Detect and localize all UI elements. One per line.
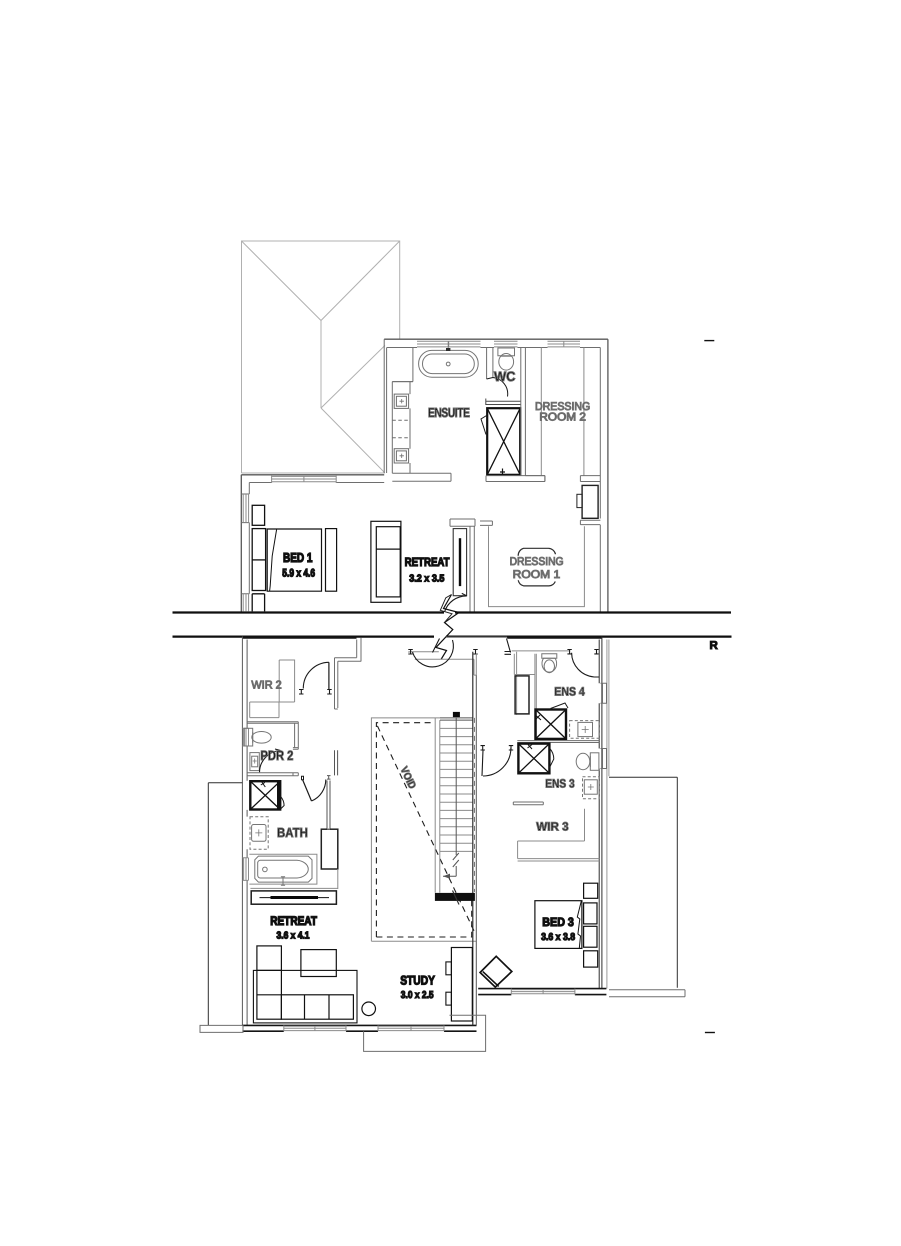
svg-text:3.2 x 3.5: 3.2 x 3.5	[409, 574, 445, 585]
svg-text:ENS 4: ENS 4	[554, 684, 585, 698]
svg-text:RETREAT: RETREAT	[270, 914, 317, 928]
svg-text:3.0 x 2.5: 3.0 x 2.5	[401, 990, 434, 1001]
svg-text:ENS 3: ENS 3	[545, 776, 575, 790]
svg-text:STUDY: STUDY	[400, 974, 435, 988]
svg-text:BATH: BATH	[277, 825, 308, 840]
svg-text:3.6 x 3.8: 3.6 x 3.8	[541, 932, 575, 943]
svg-text:DRESSING: DRESSING	[510, 556, 564, 568]
svg-text:WIR 2: WIR 2	[251, 680, 281, 692]
svg-text:R: R	[710, 640, 719, 652]
svg-text:ROOM 2: ROOM 2	[539, 411, 586, 423]
svg-text:BED 3: BED 3	[542, 915, 574, 929]
svg-text:3.6 x 4.1: 3.6 x 4.1	[277, 931, 310, 942]
svg-text:WC: WC	[494, 369, 516, 384]
svg-text:WIR 3: WIR 3	[536, 820, 569, 834]
svg-text:ROOM 1: ROOM 1	[513, 569, 561, 581]
svg-text:ENSUITE: ENSUITE	[428, 405, 470, 420]
svg-text:RETREAT: RETREAT	[405, 555, 451, 569]
svg-text:BED 1: BED 1	[283, 550, 313, 565]
svg-text:PDR 2: PDR 2	[260, 748, 293, 763]
svg-text:5.9 x 4.6: 5.9 x 4.6	[282, 567, 315, 579]
